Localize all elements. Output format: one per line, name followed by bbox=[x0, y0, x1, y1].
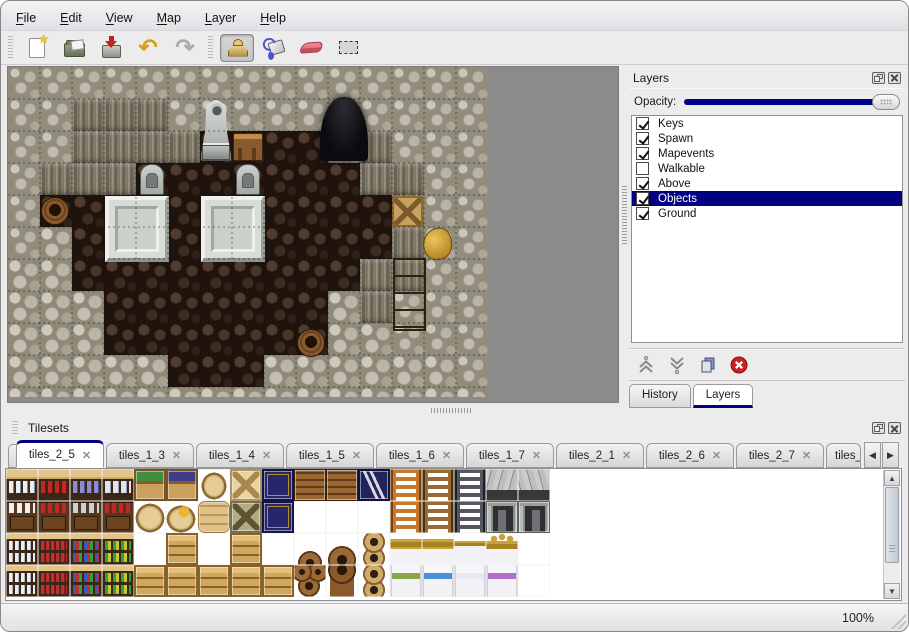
tileset-tile[interactable] bbox=[70, 533, 102, 565]
map-tile bbox=[104, 355, 136, 387]
tileset-tile[interactable] bbox=[166, 565, 198, 597]
tileset-tile[interactable] bbox=[262, 501, 294, 533]
map-tile bbox=[72, 323, 104, 355]
tileset-tile[interactable] bbox=[198, 501, 230, 533]
tileset-tile[interactable] bbox=[6, 533, 38, 565]
map-object-platform bbox=[105, 196, 169, 262]
float-panel-icon[interactable] bbox=[872, 72, 885, 84]
map-tile bbox=[168, 291, 200, 323]
toolbar-handle[interactable] bbox=[207, 36, 214, 60]
tileset-tile[interactable] bbox=[326, 469, 358, 501]
map-tile bbox=[8, 227, 40, 259]
map-tile bbox=[296, 355, 328, 387]
map-tile bbox=[8, 259, 40, 291]
map-tile bbox=[8, 291, 40, 323]
layer-move-down-button[interactable] bbox=[666, 354, 688, 376]
map-tile bbox=[168, 99, 200, 131]
tab-label: tiles_1_3 bbox=[119, 450, 165, 462]
float-panel-icon[interactable] bbox=[872, 422, 885, 434]
tab-label: tiles_1_7 bbox=[479, 450, 525, 462]
tileset-tile[interactable] bbox=[102, 469, 134, 501]
tileset-tile[interactable] bbox=[262, 565, 294, 597]
map-tile bbox=[456, 67, 488, 99]
tileset-tile[interactable] bbox=[518, 565, 550, 597]
save-button[interactable] bbox=[94, 34, 128, 62]
map-tile bbox=[136, 67, 168, 99]
map-tile bbox=[72, 227, 104, 259]
tab-close-icon[interactable]: ✕ bbox=[172, 449, 181, 462]
tab-close-icon[interactable]: ✕ bbox=[82, 449, 91, 462]
map-row bbox=[8, 355, 488, 387]
menu-map[interactable]: Map bbox=[152, 9, 186, 27]
layer-visibility-checkbox[interactable] bbox=[636, 147, 649, 160]
layer-name: Walkable bbox=[649, 163, 705, 175]
undo-button[interactable]: ↶ bbox=[131, 34, 165, 62]
tileset-tile[interactable] bbox=[390, 533, 422, 565]
map-tile bbox=[296, 387, 328, 397]
layer-visibility-checkbox[interactable] bbox=[636, 162, 649, 175]
map-tile bbox=[424, 99, 456, 131]
menu-file[interactable]: File bbox=[11, 9, 41, 27]
tilesets-panel-header: Tilesets bbox=[4, 417, 907, 439]
tileset-tile[interactable] bbox=[486, 533, 518, 565]
tileset-tab-tiles_2_1[interactable]: tiles_2_1✕ bbox=[556, 443, 644, 468]
tileset-tab-tiles_1_6[interactable]: tiles_1_6✕ bbox=[376, 443, 464, 468]
map-tile bbox=[296, 163, 328, 195]
map-tile bbox=[200, 259, 232, 291]
tileset-tile[interactable] bbox=[422, 469, 454, 501]
tab-close-icon[interactable]: ✕ bbox=[532, 449, 541, 462]
tab-close-icon[interactable]: ✕ bbox=[622, 449, 631, 462]
map-object-barrel bbox=[297, 329, 325, 357]
opacity-row: Opacity: bbox=[629, 88, 905, 114]
map-tile bbox=[104, 323, 136, 355]
tileset-tile[interactable] bbox=[166, 501, 198, 533]
resize-grip[interactable] bbox=[890, 613, 906, 629]
map-tile bbox=[296, 291, 328, 323]
tileset-row bbox=[6, 501, 550, 533]
map-tile bbox=[424, 131, 456, 163]
map-tile bbox=[328, 227, 360, 259]
tab-label: tiles_2_7 bbox=[749, 450, 795, 462]
tileset-tile[interactable] bbox=[166, 533, 198, 565]
tileset-tile[interactable] bbox=[230, 565, 262, 597]
layer-row-above[interactable]: Above bbox=[632, 176, 902, 191]
map-tile bbox=[456, 131, 488, 163]
stamp-icon bbox=[228, 39, 246, 57]
map-tile bbox=[232, 99, 264, 131]
layer-visibility-checkbox[interactable] bbox=[636, 117, 649, 130]
map-tile bbox=[392, 227, 424, 259]
map-tile bbox=[264, 227, 296, 259]
map-tile bbox=[392, 355, 424, 387]
map-tile bbox=[168, 355, 200, 387]
tileset-tile[interactable] bbox=[422, 501, 454, 533]
redo-button[interactable]: ↷ bbox=[168, 34, 202, 62]
scroll-up-arrow[interactable]: ▲ bbox=[884, 470, 900, 486]
map-tile bbox=[264, 195, 296, 227]
map-tile bbox=[8, 195, 40, 227]
map-tile bbox=[360, 355, 392, 387]
tab-close-icon[interactable]: ✕ bbox=[802, 449, 811, 462]
layer-row-objects[interactable]: Objects bbox=[632, 191, 902, 206]
tileset-tile[interactable] bbox=[326, 533, 358, 565]
map-tile bbox=[72, 291, 104, 323]
map-tile bbox=[8, 387, 40, 397]
tileset-tile[interactable] bbox=[102, 533, 134, 565]
tileset-tile[interactable] bbox=[358, 565, 390, 597]
tileset-content: ▲ ▼ bbox=[5, 468, 902, 601]
tileset-tile[interactable] bbox=[486, 469, 518, 501]
map-tile bbox=[264, 163, 296, 195]
map-tile bbox=[168, 323, 200, 355]
map-tile bbox=[456, 163, 488, 195]
map-canvas[interactable] bbox=[8, 67, 488, 397]
horizontal-splitter[interactable] bbox=[1, 403, 908, 417]
tileset-tab-tiles_1_3[interactable]: tiles_1_3✕ bbox=[106, 443, 194, 468]
opacity-slider-track[interactable] bbox=[684, 99, 898, 105]
layer-name: Objects bbox=[649, 193, 697, 205]
redo-icon: ↷ bbox=[175, 36, 194, 59]
map-tile bbox=[40, 67, 72, 99]
map-tile bbox=[72, 195, 104, 227]
map-tile bbox=[392, 387, 424, 397]
map-row bbox=[8, 67, 488, 99]
map-tile bbox=[40, 323, 72, 355]
map-tile bbox=[168, 227, 200, 259]
map-tile bbox=[104, 99, 136, 131]
tileset-scrollbar[interactable]: ▲ ▼ bbox=[883, 470, 900, 599]
tileset-row bbox=[6, 565, 550, 597]
menu-edit[interactable]: Edit bbox=[55, 9, 87, 27]
tileset-tile[interactable] bbox=[358, 469, 390, 501]
toolbar-handle[interactable] bbox=[7, 36, 14, 60]
scroll-tabs-left-arrow[interactable]: ◀ bbox=[864, 442, 881, 468]
tileset-tile[interactable] bbox=[70, 501, 102, 533]
map-tile bbox=[136, 291, 168, 323]
tileset-tile[interactable] bbox=[230, 533, 262, 565]
tileset-tab-tiles_1_7[interactable]: tiles_1_7✕ bbox=[466, 443, 554, 468]
map-tile bbox=[328, 291, 360, 323]
map-tile bbox=[264, 323, 296, 355]
tileset-tile[interactable] bbox=[262, 533, 294, 565]
map-tile bbox=[264, 387, 296, 397]
tileset-tile[interactable] bbox=[326, 501, 358, 533]
map-object-cabinet bbox=[393, 258, 426, 331]
map-tile bbox=[200, 67, 232, 99]
tileset-tile[interactable] bbox=[454, 565, 486, 597]
stamp-button[interactable] bbox=[220, 34, 254, 62]
tileset-tab-bar: tiles_2_5✕tiles_1_3✕tiles_1_4✕tiles_1_5✕… bbox=[4, 439, 907, 468]
tileset-tile[interactable] bbox=[38, 469, 70, 501]
tileset-tile[interactable] bbox=[198, 533, 230, 565]
vertical-splitter[interactable] bbox=[620, 66, 629, 403]
tileset-tile[interactable] bbox=[294, 501, 326, 533]
tileset-tab-tiles_2_5[interactable]: tiles_2_5✕ bbox=[16, 440, 104, 468]
app-window: FileEditViewMapLayerHelp ↶↷ Layers Opaci… bbox=[0, 0, 909, 632]
menu-help[interactable]: Help bbox=[255, 9, 291, 27]
tileset-tab-tiles_2_7[interactable]: tiles_2_7✕ bbox=[736, 443, 824, 468]
tileset-tile[interactable] bbox=[262, 469, 294, 501]
map-viewport[interactable] bbox=[7, 66, 619, 403]
open-button[interactable] bbox=[57, 34, 91, 62]
move-up-icon bbox=[636, 355, 656, 375]
tileset-tile[interactable] bbox=[390, 565, 422, 597]
tileset-tile[interactable] bbox=[230, 501, 262, 533]
map-tile bbox=[328, 163, 360, 195]
layer-actions-toolbar bbox=[629, 348, 905, 381]
tileset-tile[interactable] bbox=[422, 565, 454, 597]
menu-view[interactable]: View bbox=[101, 9, 138, 27]
tileset-tile[interactable] bbox=[6, 501, 38, 533]
tab-label: tiles_ bbox=[835, 450, 861, 462]
tileset-tab-tiles_1_4[interactable]: tiles_1_4✕ bbox=[196, 443, 284, 468]
splitter-grip bbox=[622, 186, 627, 246]
map-tile bbox=[72, 355, 104, 387]
tileset-tile[interactable] bbox=[70, 469, 102, 501]
map-tile bbox=[40, 291, 72, 323]
menu-bar: FileEditViewMapLayerHelp bbox=[1, 1, 908, 31]
tilesets-panel: Tilesets tiles_2_5✕tiles_1_3✕tiles_1_4✕t… bbox=[4, 417, 907, 603]
tileset-tile[interactable] bbox=[486, 501, 518, 533]
tab-label: tiles_1_4 bbox=[209, 450, 255, 462]
map-tile bbox=[200, 387, 232, 397]
map-tile bbox=[40, 227, 72, 259]
map-tile bbox=[296, 227, 328, 259]
map-tile bbox=[328, 323, 360, 355]
tab-close-icon[interactable]: ✕ bbox=[442, 449, 451, 462]
tileset-tile[interactable] bbox=[6, 565, 38, 597]
map-tile bbox=[456, 259, 488, 291]
map-tile bbox=[328, 387, 360, 397]
map-tile bbox=[296, 195, 328, 227]
tileset-tile[interactable] bbox=[38, 565, 70, 597]
layer-name: Mapevents bbox=[649, 148, 714, 160]
map-tile bbox=[136, 99, 168, 131]
tileset-tile[interactable] bbox=[422, 533, 454, 565]
map-tile bbox=[360, 195, 392, 227]
map-tile bbox=[136, 387, 168, 397]
layer-visibility-checkbox[interactable] bbox=[636, 192, 649, 205]
tileset-tile[interactable] bbox=[6, 469, 38, 501]
tileset-tab-tiles_1_5[interactable]: tiles_1_5✕ bbox=[286, 443, 374, 468]
layer-visibility-checkbox[interactable] bbox=[636, 132, 649, 145]
map-object-desk bbox=[233, 133, 263, 161]
layer-name: Ground bbox=[649, 208, 696, 220]
tileset-tile[interactable] bbox=[134, 501, 166, 533]
opacity-label: Opacity: bbox=[634, 96, 676, 108]
layer-row-mapevents[interactable]: Mapevents bbox=[632, 146, 902, 161]
map-tile bbox=[8, 67, 40, 99]
map-tile bbox=[40, 355, 72, 387]
map-tile bbox=[8, 323, 40, 355]
new-button[interactable] bbox=[20, 34, 54, 62]
tab-close-icon[interactable]: ✕ bbox=[352, 449, 361, 462]
map-tile bbox=[392, 99, 424, 131]
map-tile bbox=[328, 67, 360, 99]
layer-move-up-button[interactable] bbox=[635, 354, 657, 376]
open-icon bbox=[64, 43, 85, 57]
layer-name: Keys bbox=[649, 118, 684, 130]
tileset-tile[interactable] bbox=[454, 469, 486, 501]
map-tile bbox=[296, 259, 328, 291]
opacity-slider-handle[interactable] bbox=[872, 94, 900, 110]
map-tile bbox=[72, 387, 104, 397]
map-tile bbox=[104, 387, 136, 397]
layer-row-walkable[interactable]: Walkable bbox=[632, 161, 902, 176]
map-tile bbox=[328, 355, 360, 387]
map-tile bbox=[296, 67, 328, 99]
map-tile bbox=[424, 163, 456, 195]
scroll-tabs-right-arrow[interactable]: ▶ bbox=[882, 442, 899, 468]
map-tile bbox=[104, 67, 136, 99]
toolbar: ↶↷ bbox=[1, 31, 908, 65]
layer-row-ground[interactable]: Ground bbox=[632, 206, 902, 221]
map-tile bbox=[264, 259, 296, 291]
tileset-tile[interactable] bbox=[294, 469, 326, 501]
tab-label: tiles_1_6 bbox=[389, 450, 435, 462]
map-tile bbox=[168, 131, 200, 163]
map-tile bbox=[136, 259, 168, 291]
tab-label: tiles_2_6 bbox=[659, 450, 705, 462]
tab-label: tiles_1_5 bbox=[299, 450, 345, 462]
tileset-tile[interactable] bbox=[38, 501, 70, 533]
zoom-level-label: 100% bbox=[842, 611, 874, 625]
splitter-grip bbox=[431, 408, 473, 413]
scrollbar-thumb[interactable] bbox=[885, 487, 899, 563]
map-tile bbox=[200, 355, 232, 387]
layer-name: Spawn bbox=[649, 133, 693, 145]
map-tile bbox=[200, 323, 232, 355]
map-tile bbox=[456, 355, 488, 387]
map-tile bbox=[232, 67, 264, 99]
tileset-tile[interactable] bbox=[134, 533, 166, 565]
close-panel-icon[interactable] bbox=[888, 72, 901, 84]
map-tile bbox=[168, 163, 200, 195]
tileset-tile[interactable] bbox=[518, 469, 550, 501]
tileset-tab-tiles[interactable]: tiles_ bbox=[826, 443, 861, 468]
map-tile bbox=[360, 291, 392, 323]
tab-label: tiles_2_5 bbox=[29, 449, 75, 461]
map-tile bbox=[328, 195, 360, 227]
map-tile bbox=[360, 387, 392, 397]
tileset-tile[interactable] bbox=[102, 501, 134, 533]
tileset-tile[interactable] bbox=[486, 565, 518, 597]
tileset-tile[interactable] bbox=[326, 565, 358, 597]
tileset-tile[interactable] bbox=[518, 533, 550, 565]
map-tile bbox=[136, 323, 168, 355]
layer-row-keys[interactable]: Keys bbox=[632, 116, 902, 131]
tileset-tile[interactable] bbox=[518, 501, 550, 533]
tileset-tile[interactable] bbox=[134, 469, 166, 501]
map-tile bbox=[136, 131, 168, 163]
layer-delete-button[interactable] bbox=[728, 354, 750, 376]
map-tile bbox=[200, 291, 232, 323]
map-tile bbox=[40, 99, 72, 131]
tileset-tile[interactable] bbox=[230, 469, 262, 501]
tileset-tile[interactable] bbox=[198, 469, 230, 501]
tileset-tile[interactable] bbox=[102, 565, 134, 597]
map-tile bbox=[264, 67, 296, 99]
map-tile bbox=[328, 259, 360, 291]
tileset-tile[interactable] bbox=[294, 565, 326, 597]
map-tile bbox=[232, 291, 264, 323]
map-tile bbox=[136, 355, 168, 387]
map-tile bbox=[232, 259, 264, 291]
map-tile bbox=[8, 355, 40, 387]
move-down-icon bbox=[667, 355, 687, 375]
tileset-tile[interactable] bbox=[358, 501, 390, 533]
tab-label: tiles_2_1 bbox=[569, 450, 615, 462]
map-tile bbox=[168, 387, 200, 397]
tileset-tile[interactable] bbox=[166, 469, 198, 501]
map-tile bbox=[8, 99, 40, 131]
tab-close-icon[interactable]: ✕ bbox=[712, 449, 721, 462]
menu-layer[interactable]: Layer bbox=[200, 9, 241, 27]
duplicate-icon bbox=[698, 355, 718, 375]
map-tile bbox=[360, 323, 392, 355]
fill-button[interactable] bbox=[257, 34, 291, 62]
map-tile bbox=[168, 67, 200, 99]
tileset-tile[interactable] bbox=[294, 533, 326, 565]
tileset-tile[interactable] bbox=[358, 533, 390, 565]
opacity-slider[interactable] bbox=[684, 94, 900, 110]
map-tile bbox=[360, 67, 392, 99]
layer-list: KeysSpawnMapeventsWalkableAboveObjectsGr… bbox=[631, 115, 903, 343]
map-row bbox=[8, 387, 488, 397]
map-tile bbox=[72, 131, 104, 163]
map-tile bbox=[200, 163, 232, 195]
map-tile bbox=[232, 387, 264, 397]
status-bar: 100% bbox=[1, 603, 908, 631]
tileset-tile[interactable] bbox=[390, 501, 422, 533]
panel-drag-handle[interactable] bbox=[12, 421, 18, 435]
map-object-grave bbox=[140, 164, 164, 195]
eraser-button[interactable] bbox=[294, 34, 328, 62]
map-tile bbox=[40, 131, 72, 163]
map-tile bbox=[424, 195, 456, 227]
map-object-crate bbox=[392, 196, 423, 227]
tileset-tile[interactable] bbox=[70, 565, 102, 597]
tileset-tile[interactable] bbox=[38, 533, 70, 565]
layer-duplicate-button[interactable] bbox=[697, 354, 719, 376]
close-panel-icon[interactable] bbox=[888, 422, 901, 434]
layer-visibility-checkbox[interactable] bbox=[636, 177, 649, 190]
map-tile bbox=[72, 67, 104, 99]
map-tile bbox=[424, 387, 456, 397]
tileset-tile[interactable] bbox=[454, 533, 486, 565]
tileset-tile[interactable] bbox=[390, 469, 422, 501]
tilesets-panel-title: Tilesets bbox=[28, 421, 869, 435]
tileset-tile[interactable] bbox=[134, 565, 166, 597]
tab-close-icon[interactable]: ✕ bbox=[262, 449, 271, 462]
map-object-grave bbox=[236, 164, 260, 195]
layer-visibility-checkbox[interactable] bbox=[636, 207, 649, 220]
map-tile bbox=[264, 99, 296, 131]
layer-row-spawn[interactable]: Spawn bbox=[632, 131, 902, 146]
map-tile bbox=[360, 227, 392, 259]
map-tile bbox=[104, 291, 136, 323]
map-tile bbox=[40, 387, 72, 397]
select-button[interactable] bbox=[331, 34, 365, 62]
tileset-tile[interactable] bbox=[454, 501, 486, 533]
scroll-down-arrow[interactable]: ▼ bbox=[884, 583, 900, 599]
new-icon bbox=[29, 38, 45, 58]
map-tile bbox=[168, 195, 200, 227]
tileset-tab-tiles_2_6[interactable]: tiles_2_6✕ bbox=[646, 443, 734, 468]
tileset-tile[interactable] bbox=[198, 565, 230, 597]
map-tile bbox=[168, 259, 200, 291]
